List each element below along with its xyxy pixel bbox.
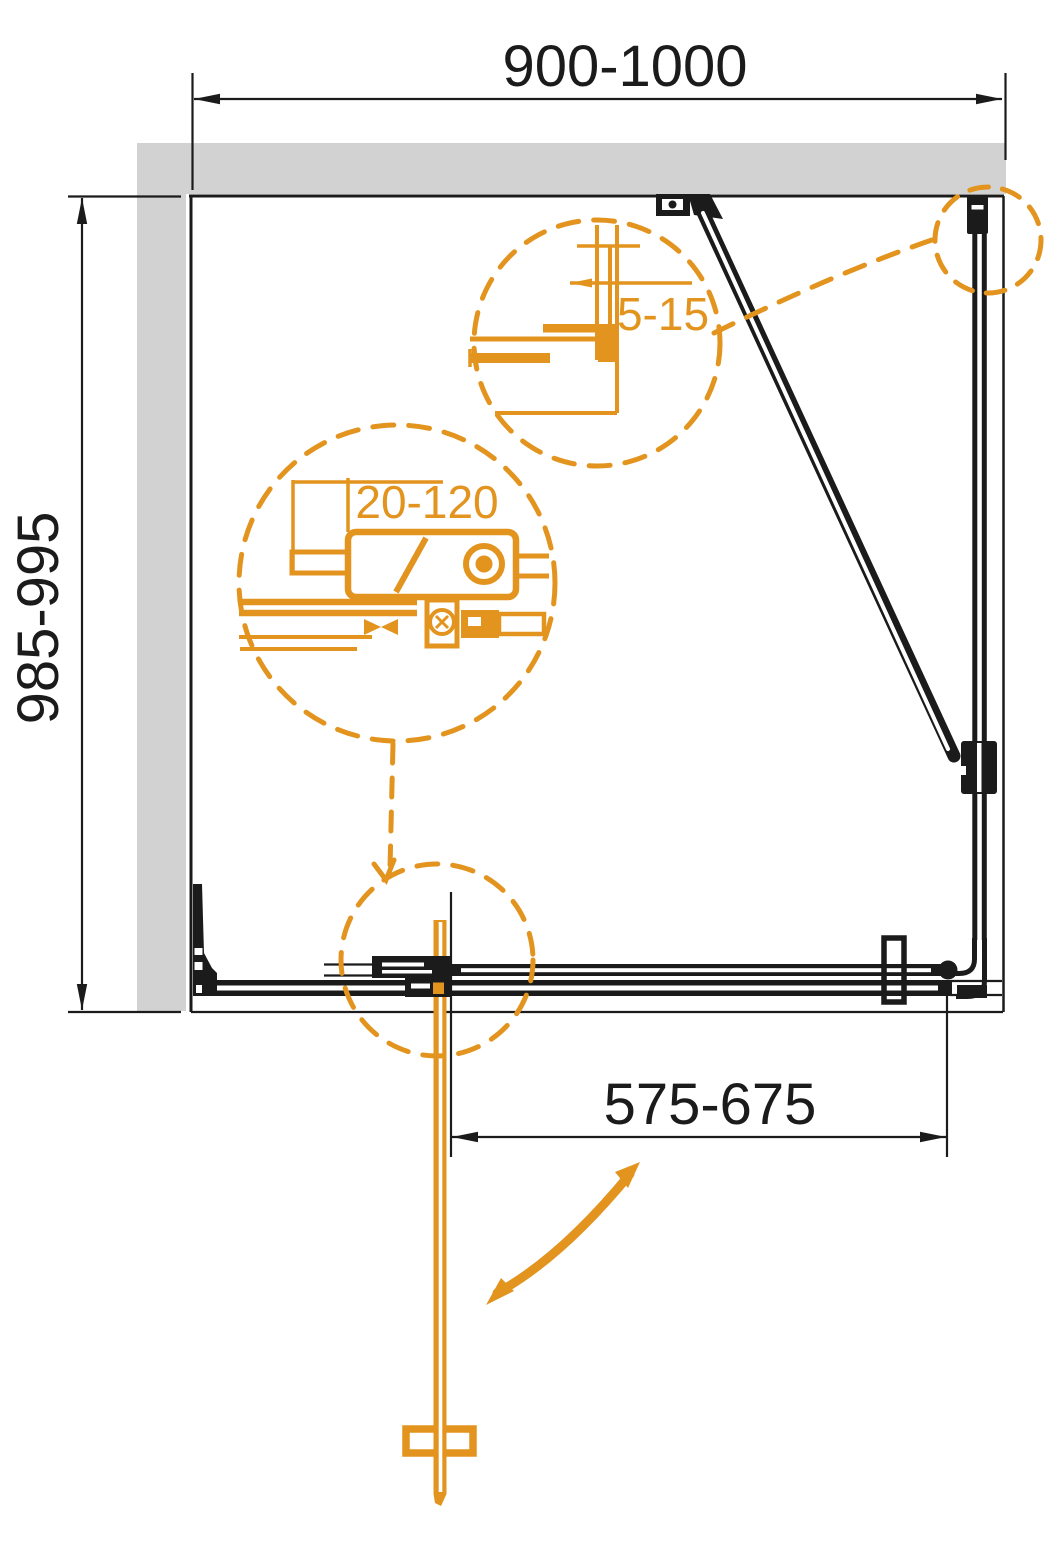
hanger-slit bbox=[411, 984, 430, 989]
door-width-label: 575-675 bbox=[604, 1072, 817, 1137]
arrow-down-icon bbox=[77, 984, 87, 1010]
clamp-nick bbox=[961, 766, 966, 775]
technical-drawing-page: 900-1000 985-995 bbox=[0, 0, 1063, 1545]
panel-top-bracket bbox=[967, 196, 988, 234]
hanger-upper-block bbox=[372, 956, 452, 978]
arrow-up-icon bbox=[77, 198, 87, 224]
shower-enclosure-plan-drawing: 900-1000 985-995 bbox=[0, 0, 1063, 1545]
fixed-glass-panel bbox=[961, 196, 997, 940]
hanger-slit bbox=[382, 963, 424, 967]
shower-door bbox=[406, 920, 473, 1506]
door-bottom-tip bbox=[434, 1494, 447, 1506]
door-leaf-core bbox=[439, 922, 443, 1492]
bottom-track bbox=[193, 884, 1002, 998]
bar-end-ball bbox=[939, 961, 958, 980]
detail-circle-roller-mechanism: 20-120 bbox=[239, 425, 555, 741]
door-pivot-section bbox=[433, 983, 444, 995]
bottom-dimension: 575-675 bbox=[451, 892, 947, 1157]
wall-profile-range-label: 5-15 bbox=[617, 288, 709, 340]
arrow-left-icon bbox=[452, 1132, 478, 1142]
bottom-rail-core bbox=[212, 986, 938, 991]
leader-wall-profile-to-corner bbox=[714, 240, 932, 333]
leader-mechanism-to-pivot bbox=[390, 744, 393, 868]
overall-depth-label: 985-995 bbox=[6, 512, 71, 725]
profile-notch bbox=[195, 962, 203, 970]
bar-bracket-screw bbox=[669, 201, 677, 209]
overall-width-label: 900-1000 bbox=[502, 34, 747, 99]
arrow-right-icon bbox=[920, 1132, 946, 1142]
left-wall-profile bbox=[193, 884, 217, 996]
adjustment-range-label: 20-120 bbox=[355, 476, 498, 528]
corner-foot bbox=[957, 985, 987, 998]
left-wall bbox=[137, 143, 186, 1011]
diagonal-bar-core bbox=[703, 213, 948, 749]
hanger-slit bbox=[382, 970, 432, 974]
panel-bracket-slot bbox=[972, 205, 984, 210]
arrow-left-icon bbox=[194, 94, 220, 104]
top-wall bbox=[137, 143, 1006, 194]
profile-notch bbox=[195, 948, 203, 955]
profile-notch bbox=[196, 985, 202, 993]
clamp-glass-slit bbox=[977, 743, 982, 792]
detail-circle-outline bbox=[239, 425, 555, 741]
swing-arc bbox=[497, 1174, 630, 1293]
arrow-right-icon bbox=[976, 94, 1002, 104]
arrow-left-icon bbox=[570, 279, 592, 288]
detail-circle-wall-profile: 5-15 bbox=[470, 220, 720, 466]
door-swing-arrow bbox=[486, 1162, 640, 1305]
